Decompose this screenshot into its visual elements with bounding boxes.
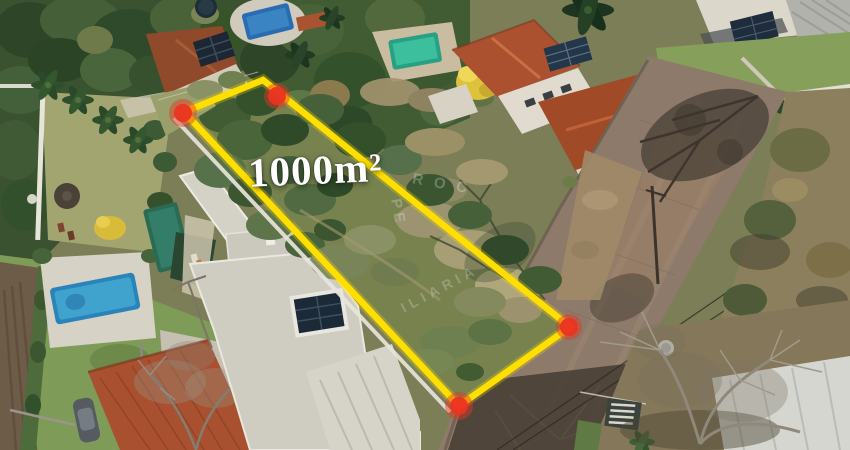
blue-pool-left [32, 248, 159, 348]
corner-marker-a [169, 99, 197, 127]
garden-table [27, 194, 37, 204]
aerial-photo: 1000m² ROC PE ILIARIA [0, 0, 850, 450]
yellow-flowering-bush-highlight [96, 216, 110, 228]
corner-marker-c [556, 314, 582, 340]
corner-marker-d [445, 392, 473, 420]
corner-marker-b [264, 83, 290, 109]
aerial-photo-canvas [0, 0, 850, 450]
